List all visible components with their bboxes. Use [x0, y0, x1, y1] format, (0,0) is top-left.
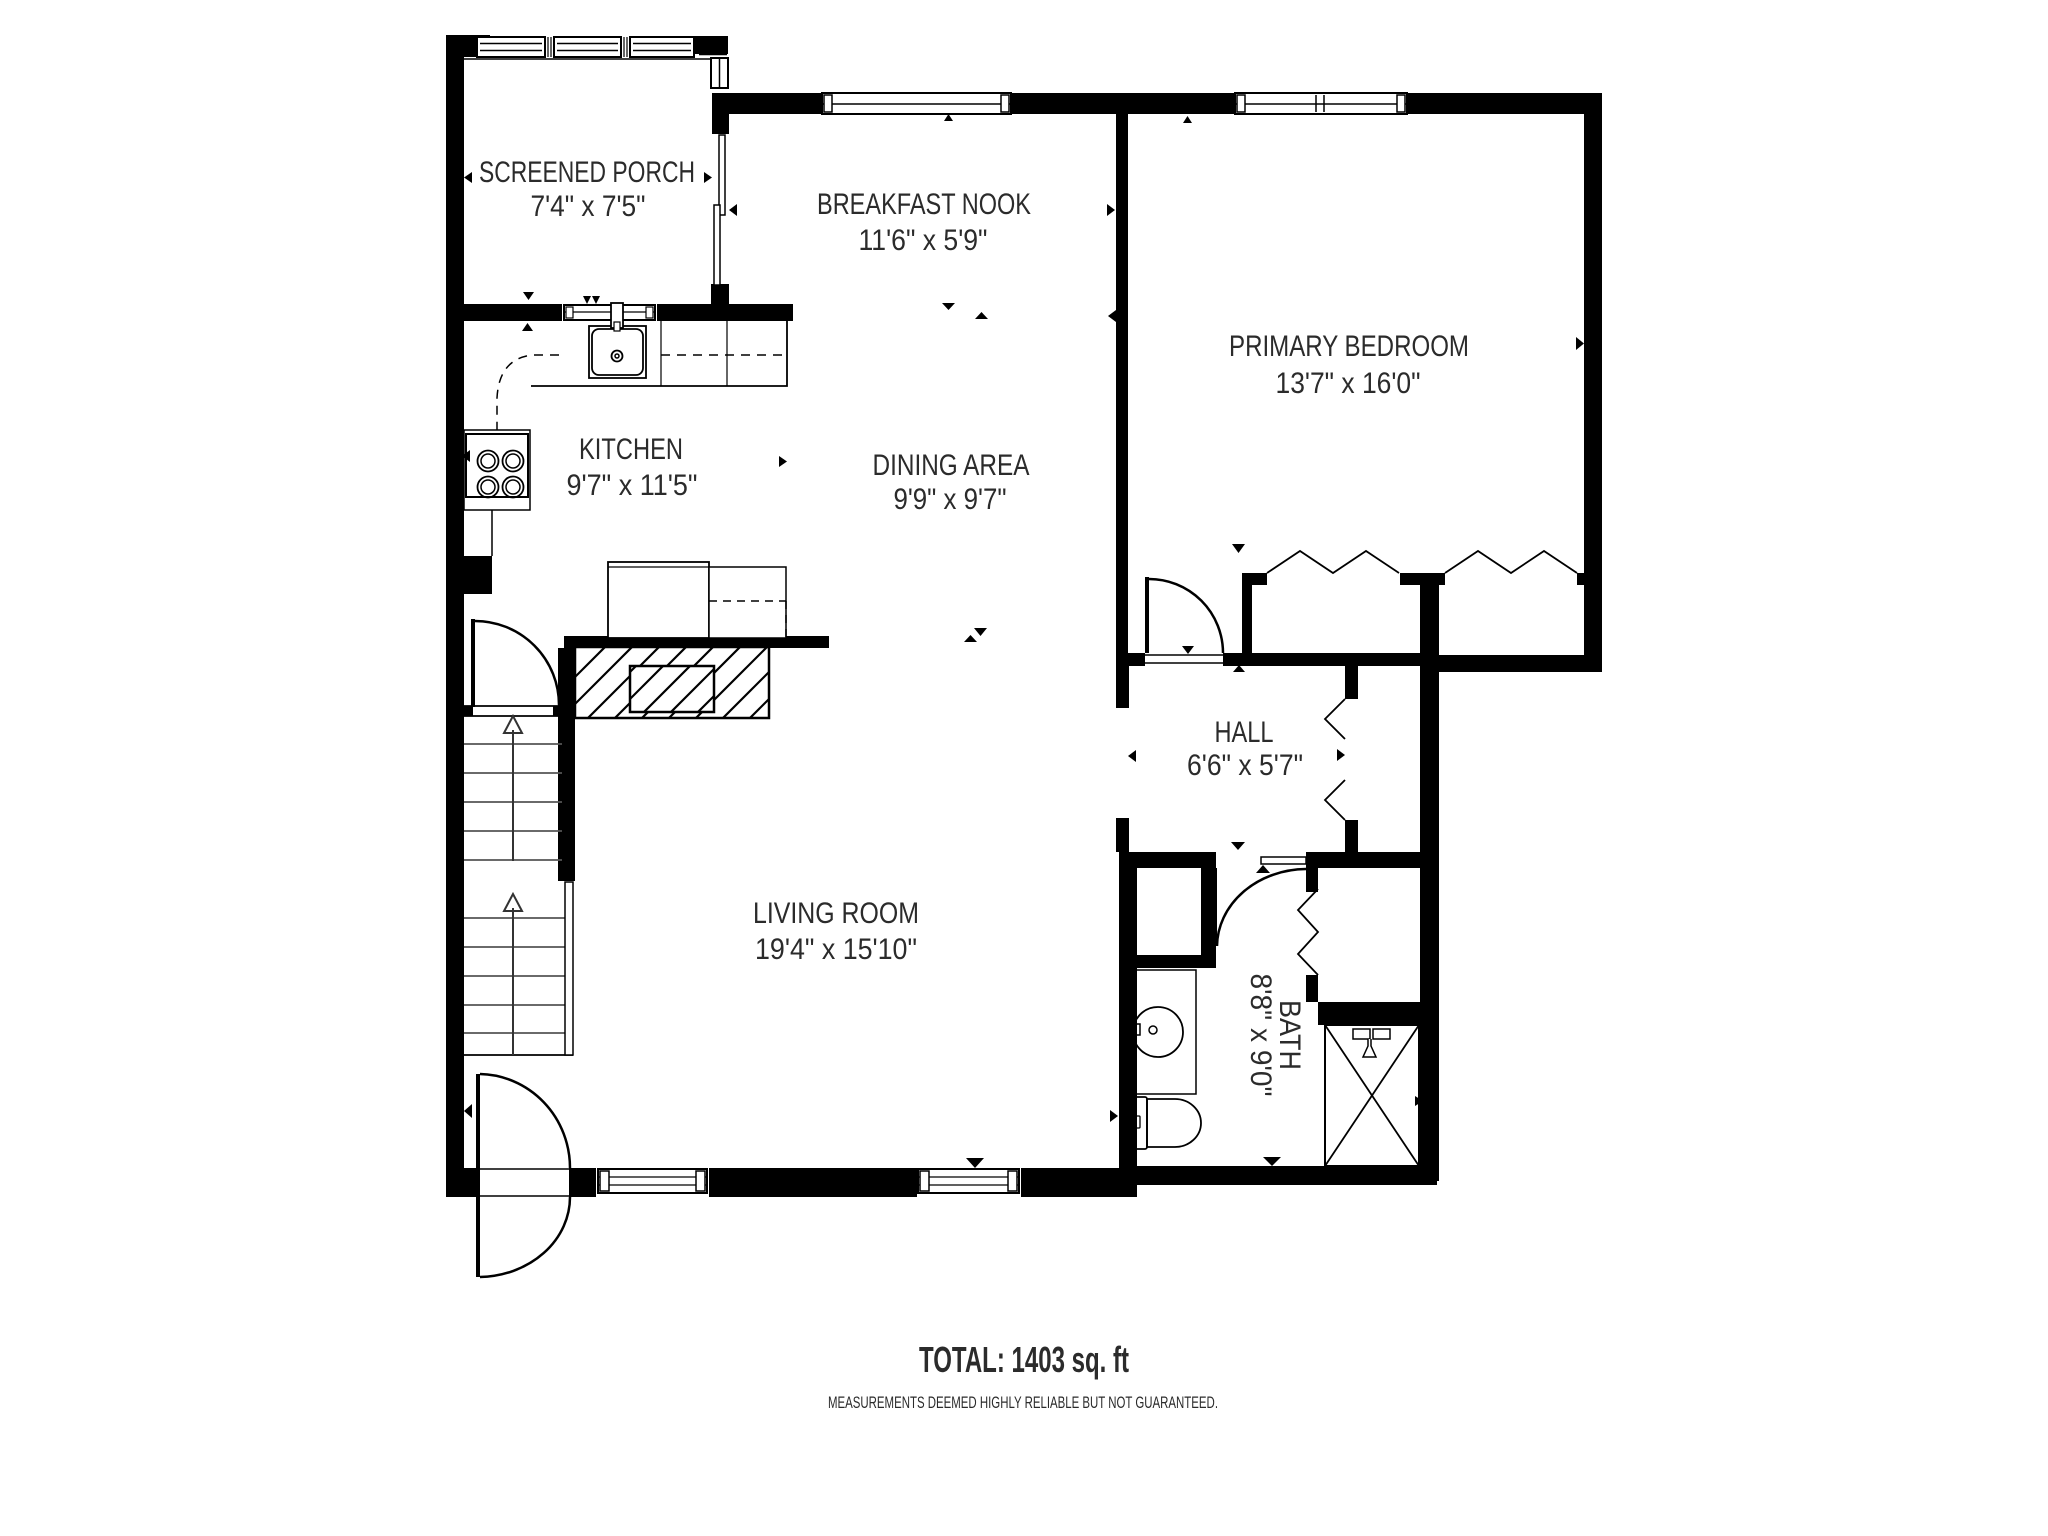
svg-text:MEASUREMENTS DEEMED HIGHLY REL: MEASUREMENTS DEEMED HIGHLY RELIABLE BUT …: [828, 1394, 1218, 1412]
svg-text:BREAKFAST NOOK: BREAKFAST NOOK: [817, 188, 1031, 221]
svg-text:KITCHEN: KITCHEN: [579, 433, 683, 466]
svg-text:9'7" x 11'5": 9'7" x 11'5": [567, 469, 698, 502]
svg-text:19'4" x 15'10": 19'4" x 15'10": [755, 933, 917, 966]
svg-text:7'4" x 7'5": 7'4" x 7'5": [531, 190, 646, 223]
svg-text:11'6" x 5'9": 11'6" x 5'9": [859, 224, 988, 257]
svg-text:HALL: HALL: [1215, 716, 1274, 749]
svg-text:SCREENED PORCH: SCREENED PORCH: [479, 156, 695, 189]
svg-text:LIVING ROOM: LIVING ROOM: [753, 897, 919, 930]
svg-text:6'6" x 5'7": 6'6" x 5'7": [1187, 749, 1303, 782]
svg-text:9'9" x 9'7": 9'9" x 9'7": [894, 483, 1007, 516]
svg-text:8'8" x 9'0": 8'8" x 9'0": [1244, 974, 1277, 1097]
svg-text:13'7" x 16'0": 13'7" x 16'0": [1276, 367, 1421, 400]
svg-text:TOTAL: 1403 sq. ft: TOTAL: 1403 sq. ft: [919, 1339, 1129, 1380]
svg-text:DINING AREA: DINING AREA: [873, 449, 1030, 482]
svg-text:PRIMARY BEDROOM: PRIMARY BEDROOM: [1229, 330, 1469, 363]
